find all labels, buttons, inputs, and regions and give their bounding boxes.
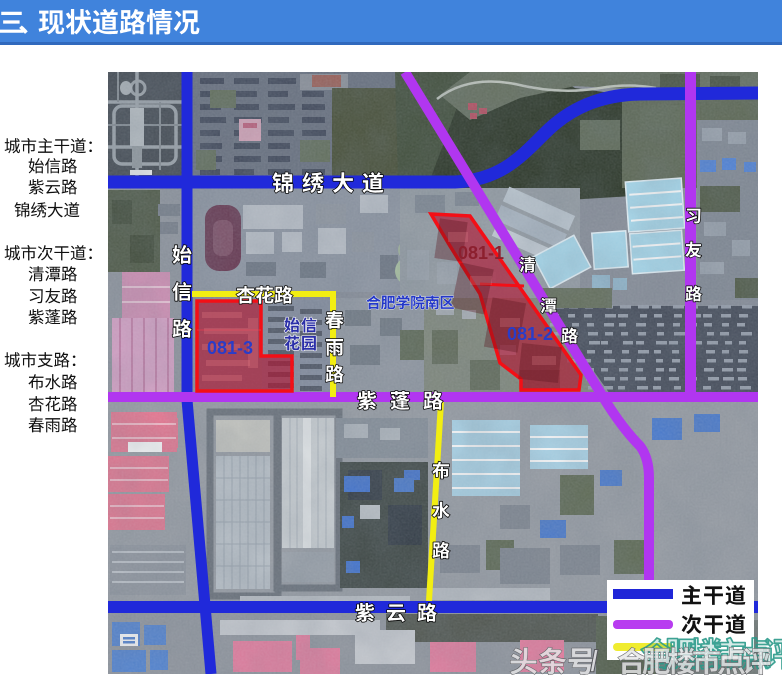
svg-text:/: / <box>590 645 599 678</box>
svg-text:081-3: 081-3 <box>207 338 253 358</box>
svg-text:081-1: 081-1 <box>458 243 504 263</box>
svg-text:081-2: 081-2 <box>507 324 553 344</box>
